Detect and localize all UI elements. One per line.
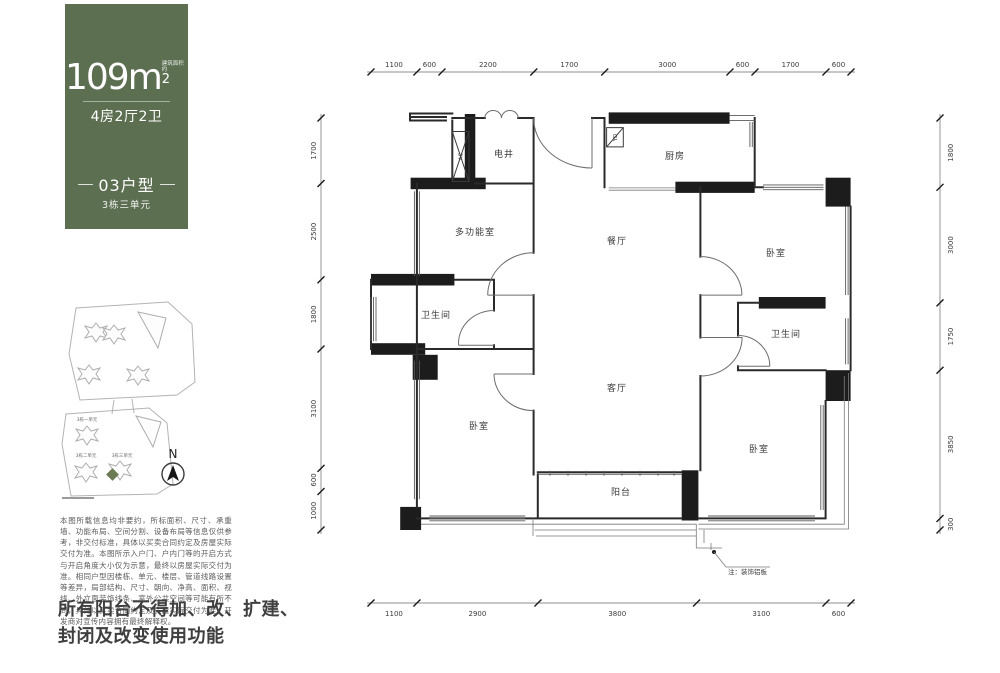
dim-label: 2500 [310,223,318,241]
dim-label: 1700 [782,61,800,69]
note-label: 注：装饰铝板 [728,567,768,576]
room-label-kitchen: 厨房 [665,150,685,162]
dim-label: 2900 [469,610,487,618]
yd-label: YD [613,134,619,143]
unit-subtitle: 3栋三单元 [65,197,188,211]
dim-label: 1000 [310,502,318,520]
info-panel: 109m 建筑面积约 2 4房2厅2卫 03户型 3栋三单元 [65,4,188,229]
area-headline: 109m 建筑面积约 2 [65,60,188,96]
dimension-lines: 1100600220017003000600170060011002900380… [310,61,955,618]
dim-label: 600 [310,473,318,486]
site-parcel-north [69,302,195,400]
dim-label: 1800 [310,305,318,323]
dim-label: 1100 [385,61,403,69]
balcony-notice: 所有阳台不得加、改、扩建、 封闭及改变使用功能 [58,596,303,650]
room-labels: 电井 厨房 多功能室 餐厅 卧室 卫生间 客厅 卫生间 卧室 卧室 阳台 [421,148,801,498]
site-building-triangle [136,416,161,447]
dim-label: 300 [947,518,955,531]
decor-trim-lines [421,188,849,550]
dim-label: 3850 [947,435,955,453]
panel-divider [83,101,170,102]
area-unit: m [128,60,161,96]
room-label-dining: 餐厅 [607,235,627,247]
dim-label: 3000 [658,61,676,69]
dim-label: 1750 [947,328,955,346]
dim-label: 2200 [479,61,497,69]
site-building [78,365,100,384]
area-value: 109 [65,60,128,96]
balcony-notice-line1: 所有阳台不得加、改、扩建、 [58,596,303,623]
site-plan: 3栋一单元 3栋二单元 3栋三单元 N [56,296,206,501]
page: 109m 建筑面积约 2 4房2厅2卫 03户型 3栋三单元 3栋一单元 [0,0,1000,673]
yd-fixture: YD [607,128,624,147]
room-label-bedroom-se: 卧室 [749,443,769,455]
room-label-balcony: 阳台 [611,486,631,498]
site-label-unit1: 3栋一单元 [77,416,98,423]
site-building-triangle [138,312,166,348]
dim-label: 1700 [310,142,318,160]
area-superscript: 2 [162,73,170,86]
dim-label: 600 [423,61,436,69]
site-road-connector [112,399,134,414]
room-label-shaft: 电井 [494,148,514,160]
layout-badge: 4房2厅2卫 [65,106,188,126]
dim-label: 1700 [560,61,578,69]
dim-label: 600 [832,61,845,69]
site-label-unit3: 3栋三单元 [112,452,133,459]
north-label: N [169,447,178,461]
dim-label: 3100 [752,610,770,618]
note-callout: 注：装饰铝板 [712,550,770,576]
floor-plan: AC YD 电井 厨房 多功能室 餐厅 卧室 卫生间 客厅 卫生间 卧室 卧室 … [300,40,980,660]
site-building [127,366,149,385]
room-label-multifunction: 多功能室 [455,226,495,238]
site-building [75,463,97,482]
site-label-unit2: 3栋二单元 [76,452,97,459]
area-note: 建筑面积约 [162,62,188,73]
balcony-notice-line2: 封闭及改变使用功能 [58,623,303,650]
site-building [76,426,98,445]
dim-label: 1800 [947,144,955,162]
dim-label: 600 [832,610,845,618]
dim-label: 600 [736,61,749,69]
dim-label: 1100 [385,610,403,618]
room-label-bedroom-sw: 卧室 [469,420,489,432]
dim-label: 3800 [608,610,626,618]
structural-walls [371,112,851,530]
unit-type: 03户型 [98,172,154,196]
unit-type-row: 03户型 [65,172,188,196]
room-label-bath-east: 卫生间 [771,328,801,340]
dim-label: 3100 [310,400,318,418]
room-label-living: 客厅 [607,382,627,394]
compass-needle [167,465,179,481]
ac-label: AC [459,153,465,161]
dash-left [78,184,93,185]
section-divider [62,497,94,499]
dim-label: 3000 [947,236,955,254]
room-label-bedroom-ne: 卧室 [766,247,786,259]
room-label-bath-west: 卫生间 [421,309,451,321]
dash-right [160,184,175,185]
